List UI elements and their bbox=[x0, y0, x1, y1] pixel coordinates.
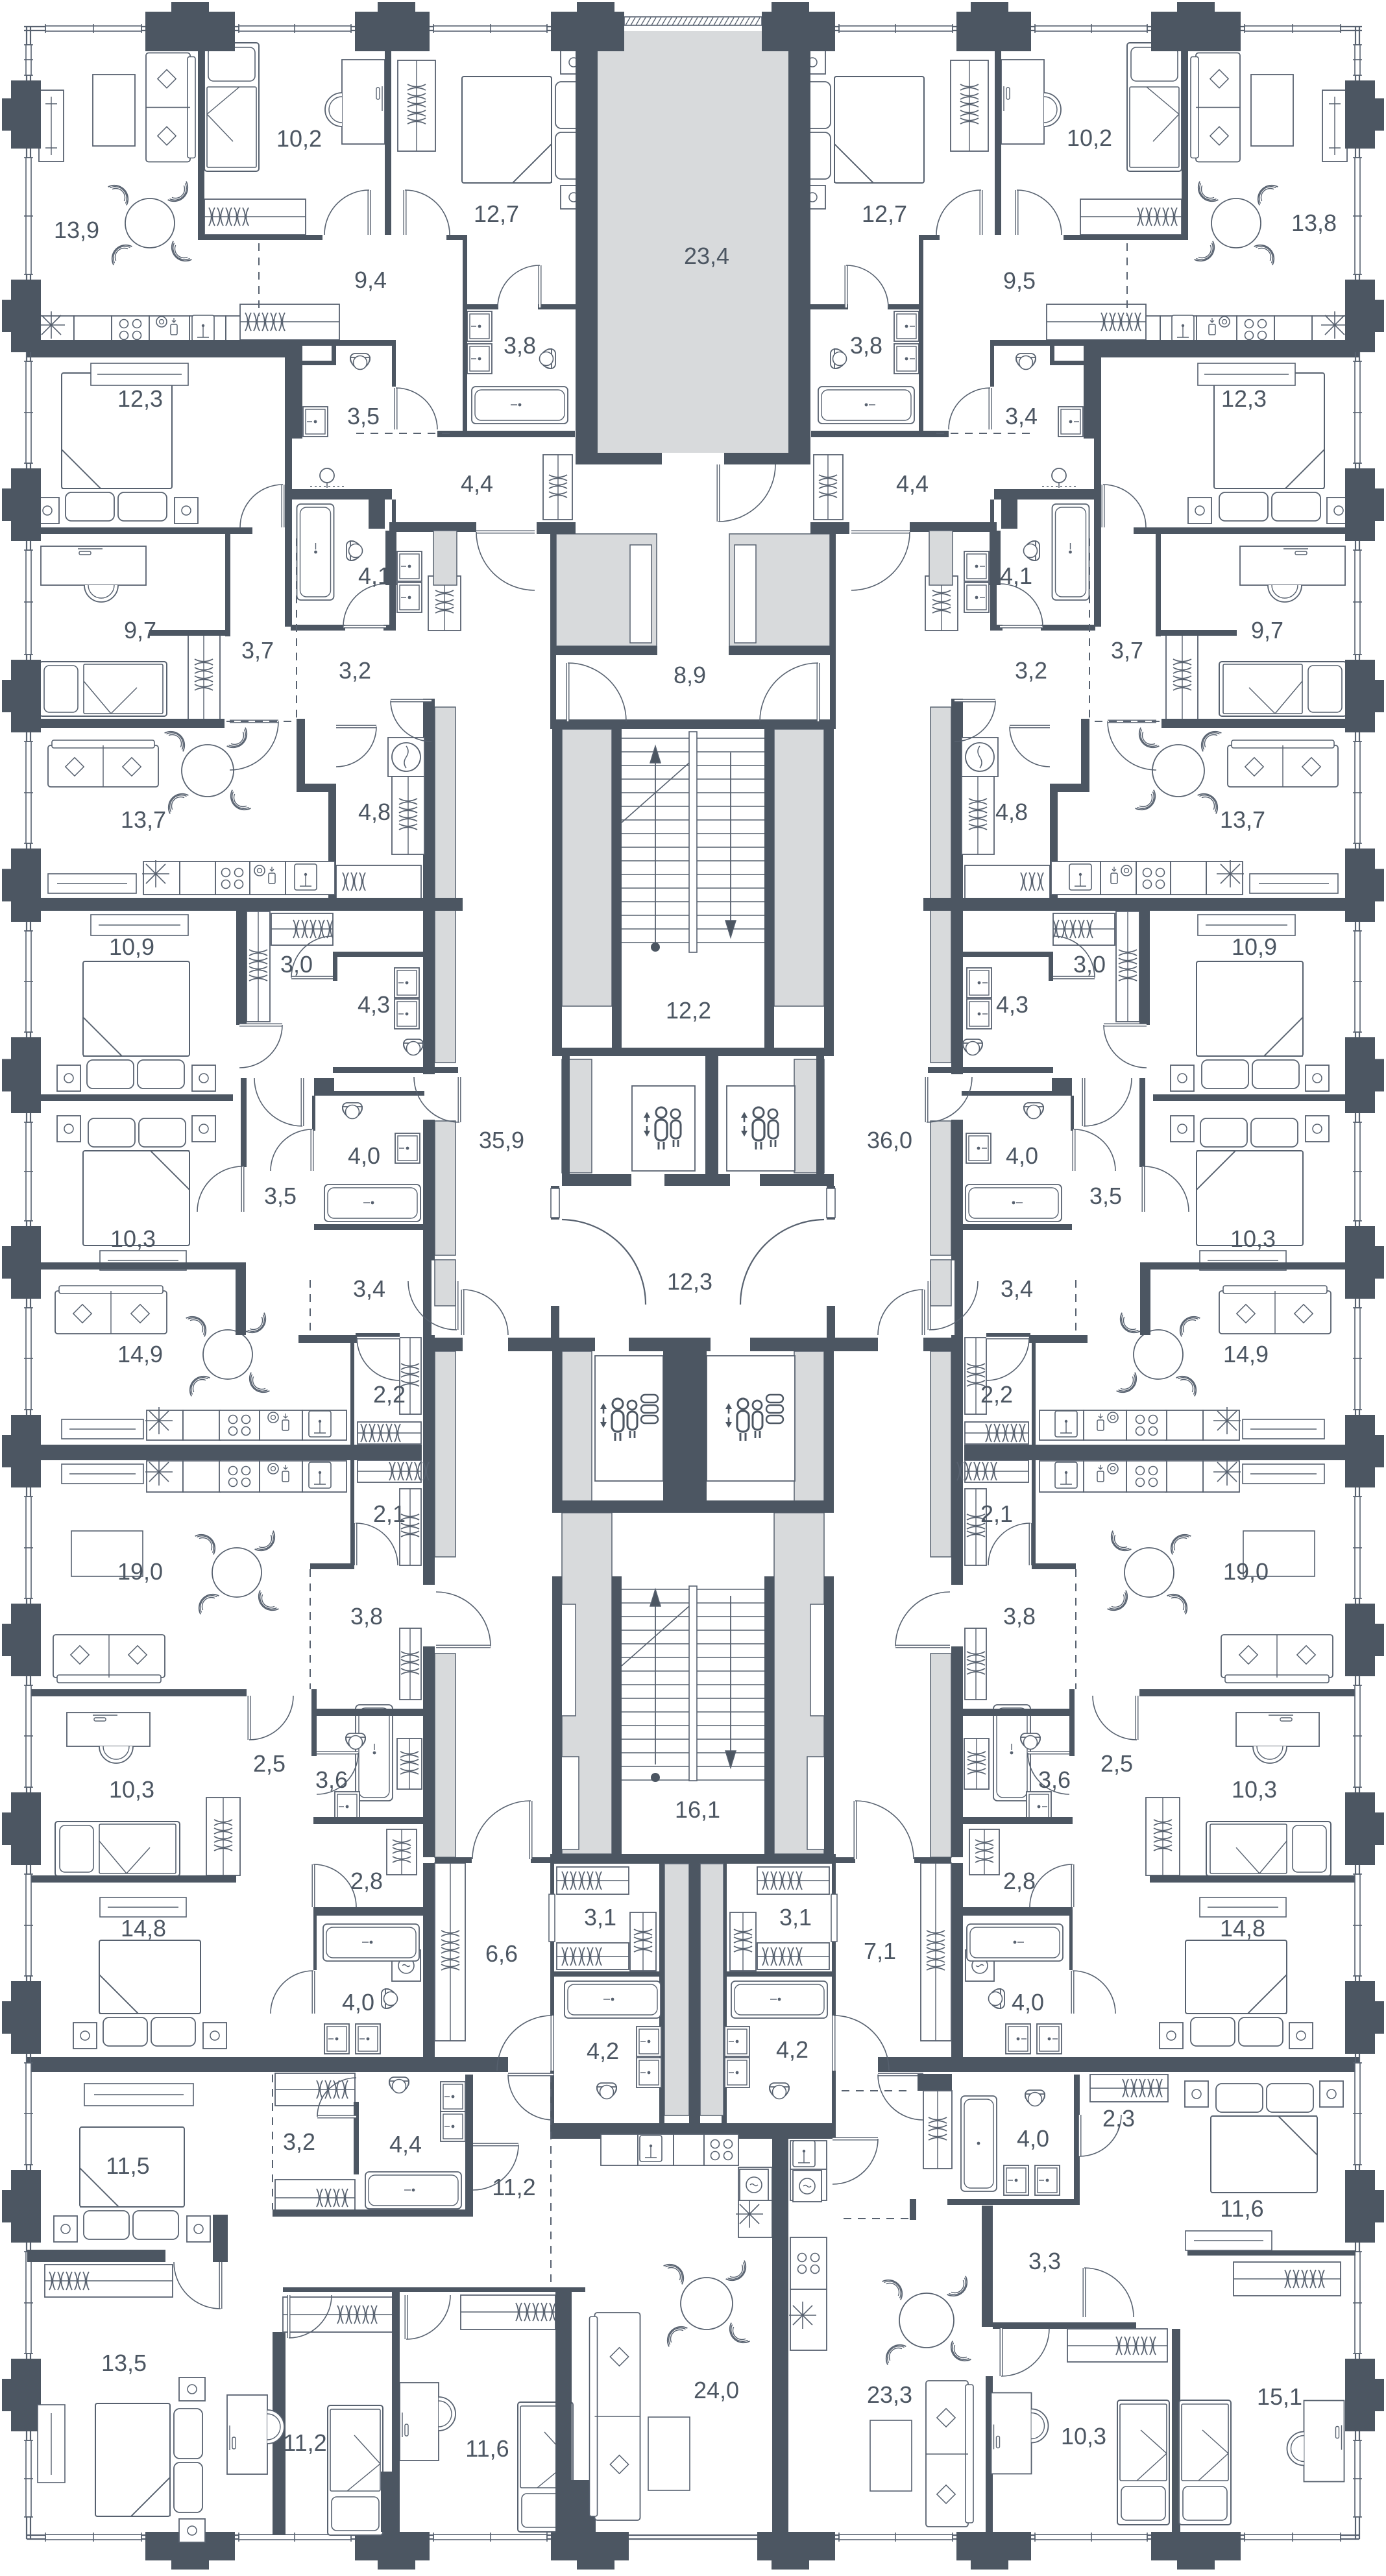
svg-text:4,8: 4,8 bbox=[995, 799, 1028, 825]
svg-text:2,2: 2,2 bbox=[373, 1381, 406, 1408]
svg-text:13,7: 13,7 bbox=[1220, 806, 1265, 833]
svg-text:15,1: 15,1 bbox=[1257, 2383, 1302, 2410]
svg-text:4,0: 4,0 bbox=[348, 1142, 380, 1169]
svg-text:9,7: 9,7 bbox=[1251, 617, 1283, 644]
svg-text:2,5: 2,5 bbox=[1100, 1750, 1133, 1777]
svg-text:3,4: 3,4 bbox=[353, 1275, 385, 1302]
svg-text:4,4: 4,4 bbox=[896, 470, 929, 497]
svg-text:6,6: 6,6 bbox=[485, 1940, 518, 1967]
svg-text:13,5: 13,5 bbox=[101, 2350, 147, 2376]
svg-text:35,9: 35,9 bbox=[479, 1127, 524, 1153]
svg-text:4,2: 4,2 bbox=[587, 2038, 619, 2064]
svg-text:12,7: 12,7 bbox=[474, 200, 519, 227]
svg-text:4,0: 4,0 bbox=[342, 1989, 374, 2016]
svg-text:4,3: 4,3 bbox=[358, 991, 390, 1018]
svg-text:23,4: 23,4 bbox=[684, 243, 729, 269]
svg-text:11,2: 11,2 bbox=[283, 2429, 326, 2456]
svg-text:3,8: 3,8 bbox=[1003, 1603, 1036, 1630]
svg-text:12,3: 12,3 bbox=[117, 385, 163, 412]
svg-text:2,8: 2,8 bbox=[1003, 1868, 1036, 1894]
svg-text:4,0: 4,0 bbox=[1006, 1142, 1038, 1169]
svg-text:11,6: 11,6 bbox=[465, 2435, 509, 2462]
svg-text:4,8: 4,8 bbox=[358, 799, 391, 825]
svg-text:3,0: 3,0 bbox=[280, 951, 313, 978]
svg-text:2,1: 2,1 bbox=[980, 1500, 1013, 1527]
svg-text:12,3: 12,3 bbox=[667, 1268, 712, 1295]
svg-text:24,0: 24,0 bbox=[694, 2377, 739, 2403]
svg-text:3,6: 3,6 bbox=[1038, 1766, 1071, 1793]
svg-text:3,5: 3,5 bbox=[347, 403, 380, 429]
svg-text:9,4: 9,4 bbox=[354, 267, 387, 293]
svg-text:2,2: 2,2 bbox=[980, 1381, 1013, 1408]
svg-text:2,3: 2,3 bbox=[1102, 2105, 1135, 2132]
svg-text:19,0: 19,0 bbox=[117, 1558, 163, 1585]
svg-text:23,3: 23,3 bbox=[867, 2381, 912, 2408]
svg-text:3,7: 3,7 bbox=[1111, 637, 1143, 664]
svg-text:14,9: 14,9 bbox=[117, 1341, 163, 1367]
svg-text:11,6: 11,6 bbox=[1220, 2195, 1263, 2222]
svg-text:13,8: 13,8 bbox=[1291, 210, 1337, 236]
svg-text:4,1: 4,1 bbox=[358, 562, 391, 589]
svg-text:3,1: 3,1 bbox=[779, 1904, 812, 1931]
svg-text:3,4: 3,4 bbox=[1001, 1275, 1033, 1302]
svg-text:4,4: 4,4 bbox=[389, 2131, 422, 2158]
svg-text:3,2: 3,2 bbox=[1015, 657, 1047, 684]
svg-text:3,8: 3,8 bbox=[850, 332, 882, 359]
svg-text:3,8: 3,8 bbox=[350, 1603, 383, 1630]
svg-text:3,5: 3,5 bbox=[264, 1183, 297, 1209]
svg-text:3,3: 3,3 bbox=[1028, 2248, 1061, 2274]
svg-text:10,2: 10,2 bbox=[1067, 125, 1112, 151]
svg-text:3,0: 3,0 bbox=[1073, 951, 1106, 978]
svg-text:2,8: 2,8 bbox=[350, 1868, 383, 1894]
svg-text:13,9: 13,9 bbox=[54, 217, 99, 243]
svg-text:2,1: 2,1 bbox=[373, 1500, 406, 1527]
svg-text:4,2: 4,2 bbox=[776, 2036, 808, 2063]
svg-text:3,5: 3,5 bbox=[1089, 1183, 1122, 1209]
svg-text:10,2: 10,2 bbox=[276, 125, 322, 152]
svg-text:3,2: 3,2 bbox=[283, 2128, 315, 2155]
svg-text:14,8: 14,8 bbox=[1220, 1915, 1265, 1942]
svg-text:16,1: 16,1 bbox=[675, 1796, 720, 1823]
svg-text:11,2: 11,2 bbox=[492, 2174, 535, 2200]
svg-text:10,3: 10,3 bbox=[1232, 1776, 1277, 1803]
svg-text:3,1: 3,1 bbox=[584, 1904, 616, 1931]
svg-text:4,3: 4,3 bbox=[996, 991, 1028, 1018]
svg-text:12,2: 12,2 bbox=[666, 997, 711, 1024]
svg-text:10,3: 10,3 bbox=[109, 1776, 154, 1803]
svg-text:3,4: 3,4 bbox=[1005, 403, 1038, 429]
svg-text:2,5: 2,5 bbox=[253, 1750, 286, 1777]
svg-text:12,7: 12,7 bbox=[862, 200, 907, 227]
svg-text:4,0: 4,0 bbox=[1017, 2125, 1049, 2152]
svg-text:10,9: 10,9 bbox=[109, 933, 154, 960]
svg-text:14,8: 14,8 bbox=[121, 1915, 166, 1942]
svg-text:36,0: 36,0 bbox=[867, 1127, 912, 1153]
svg-text:4,4: 4,4 bbox=[461, 470, 493, 497]
svg-text:9,7: 9,7 bbox=[124, 617, 156, 644]
svg-text:10,3: 10,3 bbox=[110, 1225, 156, 1252]
svg-text:19,0: 19,0 bbox=[1223, 1558, 1269, 1585]
svg-text:11,5: 11,5 bbox=[106, 2152, 149, 2179]
svg-text:10,9: 10,9 bbox=[1232, 933, 1277, 960]
svg-text:10,3: 10,3 bbox=[1061, 2423, 1106, 2450]
svg-text:7,1: 7,1 bbox=[864, 1938, 896, 1964]
svg-text:4,1: 4,1 bbox=[1000, 562, 1032, 589]
svg-text:3,2: 3,2 bbox=[339, 657, 371, 684]
svg-text:3,6: 3,6 bbox=[315, 1766, 348, 1793]
svg-text:14,9: 14,9 bbox=[1223, 1341, 1269, 1367]
svg-text:8,9: 8,9 bbox=[674, 662, 706, 688]
svg-text:4,0: 4,0 bbox=[1012, 1989, 1044, 2016]
svg-text:9,5: 9,5 bbox=[1003, 267, 1036, 294]
svg-text:10,3: 10,3 bbox=[1230, 1225, 1276, 1252]
svg-text:3,7: 3,7 bbox=[241, 637, 274, 664]
svg-text:3,8: 3,8 bbox=[504, 332, 536, 359]
svg-text:12,3: 12,3 bbox=[1221, 385, 1267, 412]
svg-text:13,7: 13,7 bbox=[121, 806, 166, 833]
